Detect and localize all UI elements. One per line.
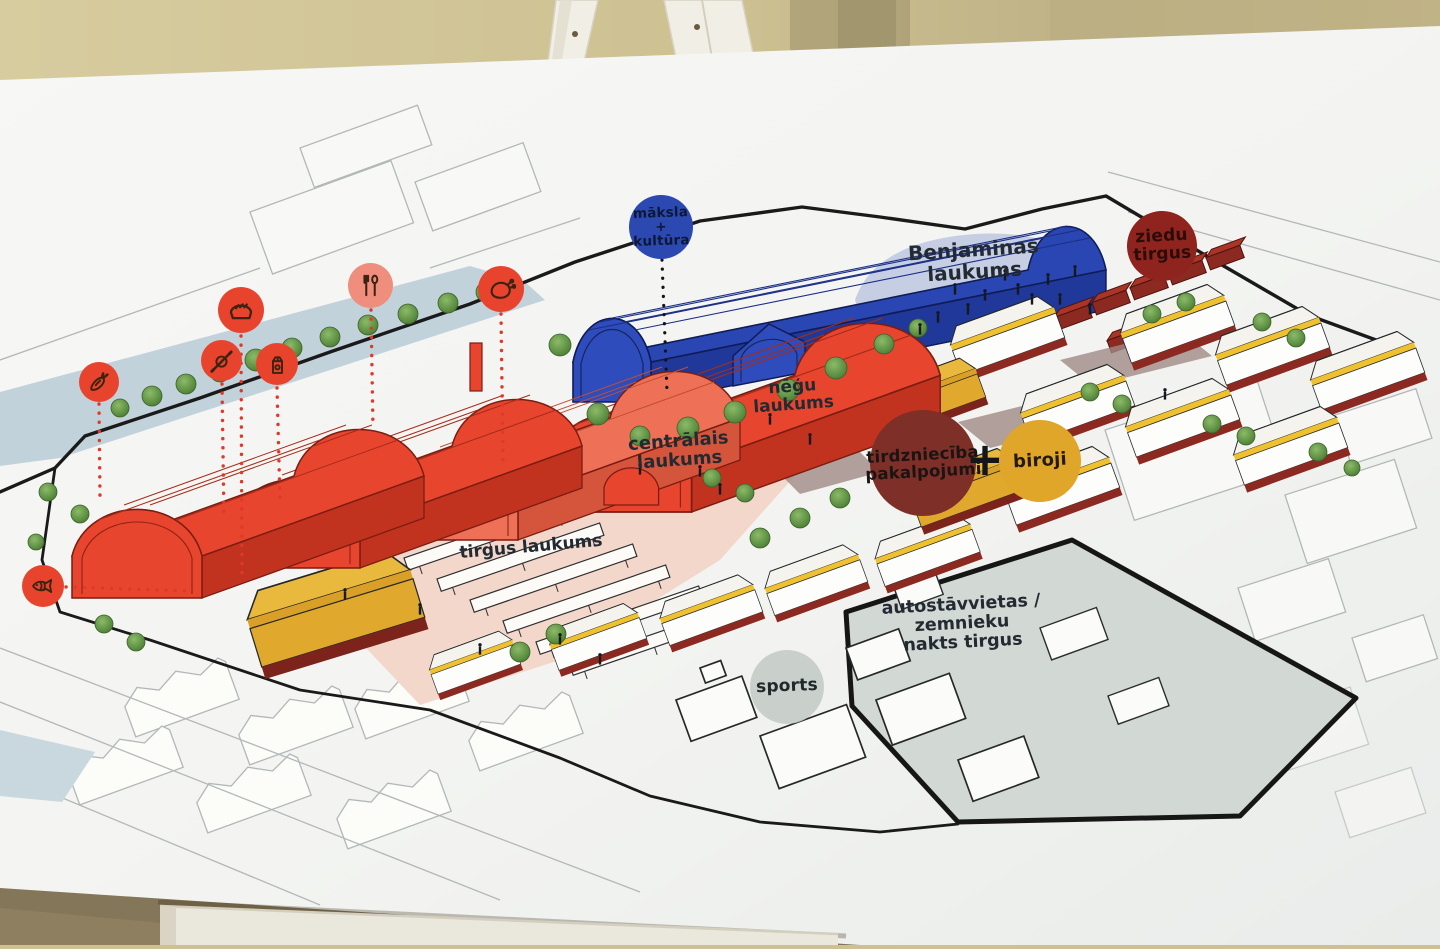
easel-screw [572, 31, 578, 37]
market-chimney [470, 343, 482, 391]
photo-of-masterplan-board: Benjaminas laukums nēģu laukums centrāla… [0, 0, 1440, 945]
site-plan-svg [0, 0, 1440, 945]
sports-area-circle [750, 650, 824, 724]
easel-screw [694, 24, 700, 30]
